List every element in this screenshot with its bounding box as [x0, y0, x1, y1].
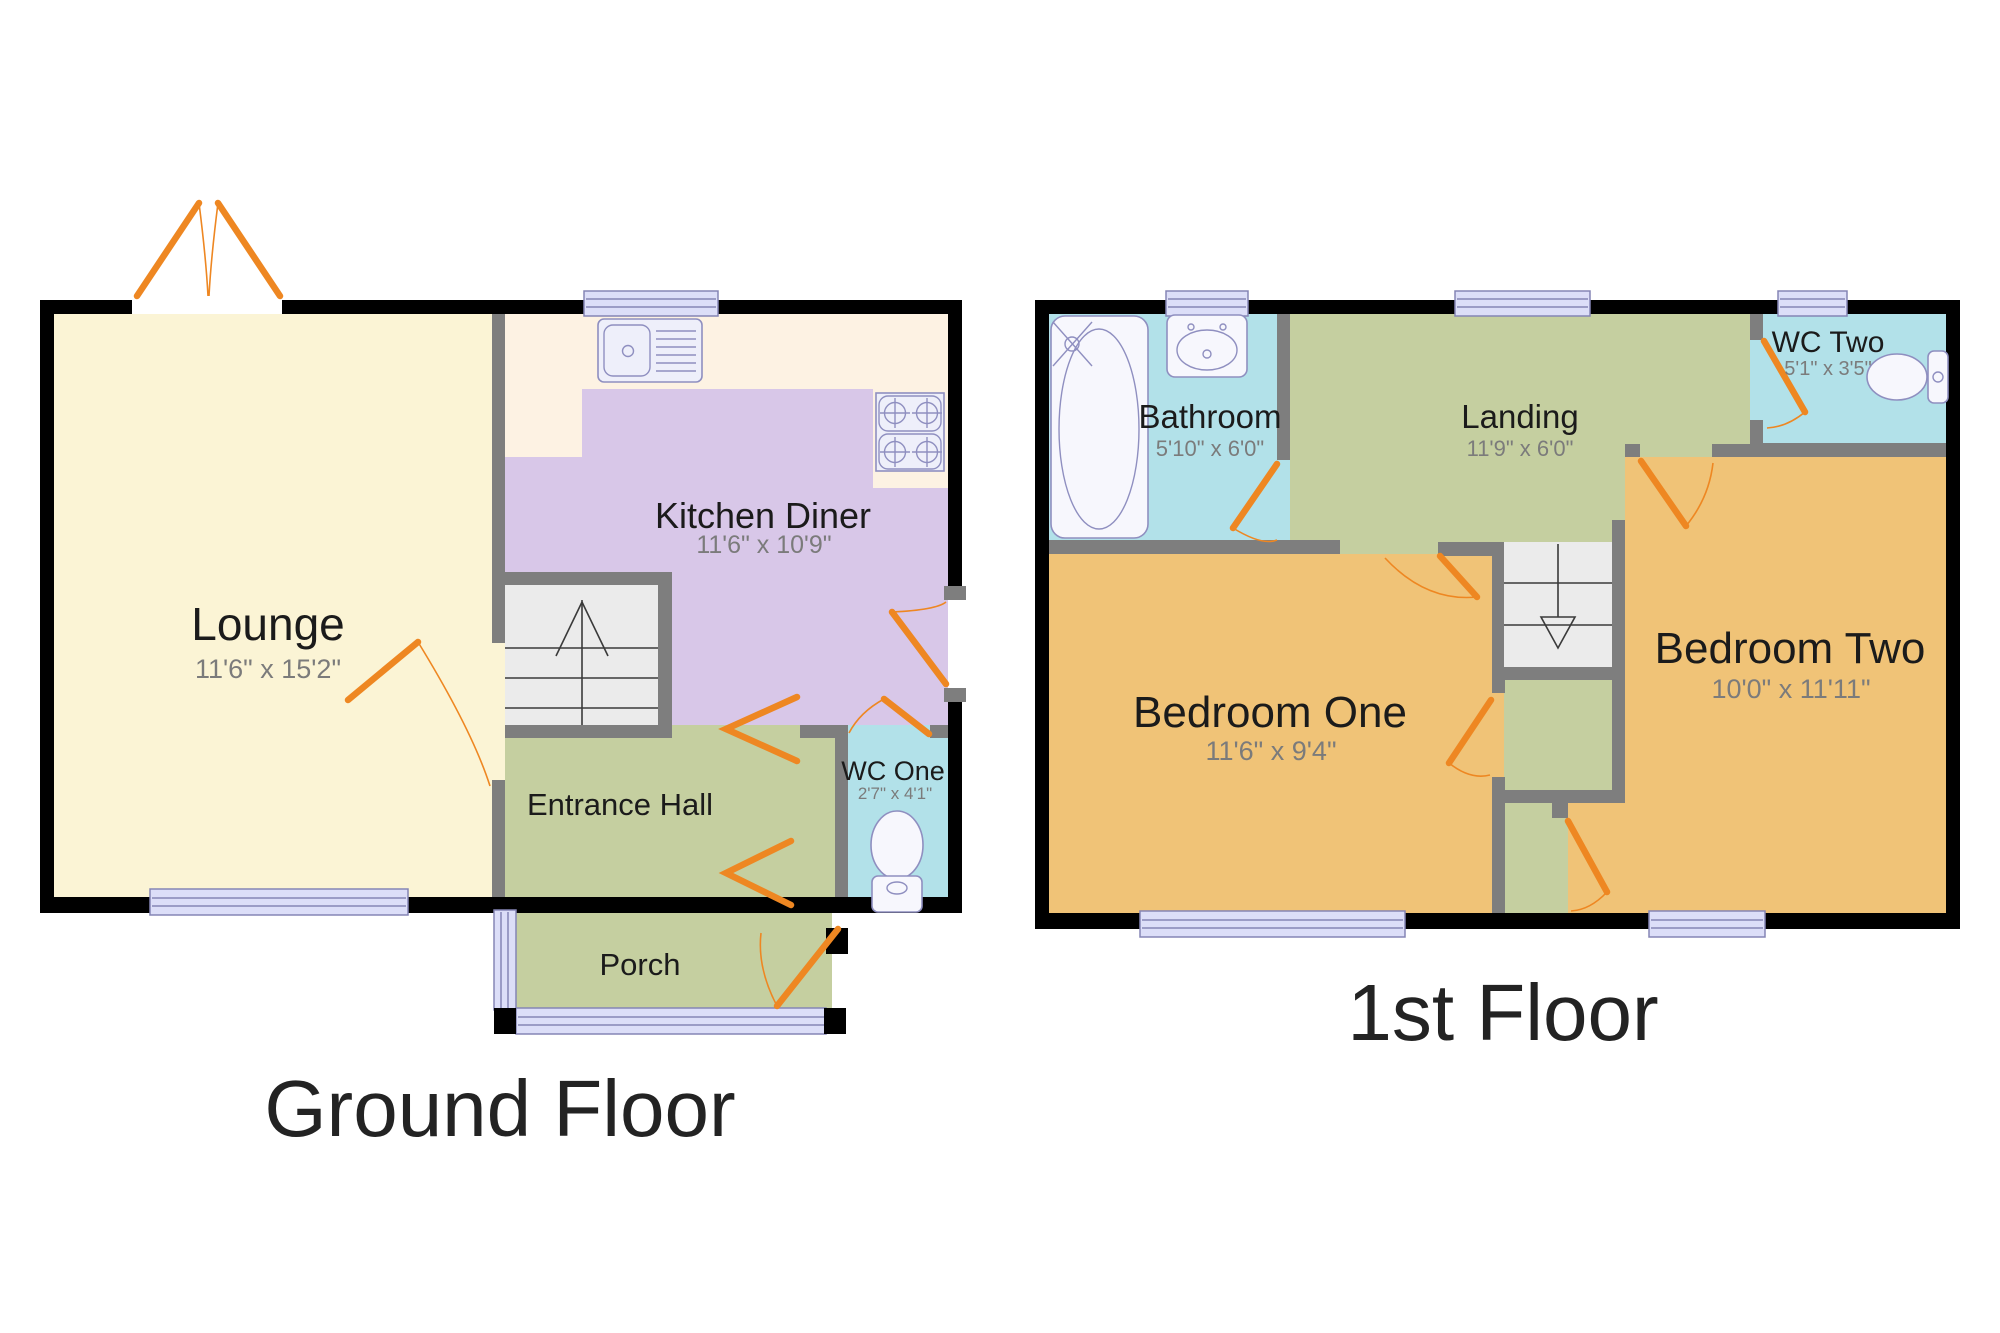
- landing-wall-piece: [1438, 542, 1504, 556]
- bedroom-two-door-opening: [1640, 444, 1712, 457]
- pocket-wall-bottom: [1492, 790, 1625, 803]
- landing-window: [1455, 291, 1590, 316]
- kitchen-door-opening: [948, 600, 962, 688]
- stairs-wall-right: [658, 572, 672, 738]
- bathroom-dims: 5'10" x 6'0": [1156, 436, 1264, 461]
- kitchen-diner-label: Kitchen Diner: [655, 495, 871, 536]
- porch-post: [494, 1008, 516, 1034]
- lounge-dims: 11'6" x 15'2": [195, 654, 341, 684]
- door-swing-arc: [209, 203, 218, 296]
- wc-two-wall-left-upper: [1750, 314, 1763, 340]
- wc-one-dims: 2'7" x 4'1": [858, 784, 932, 803]
- stairs-down-icon: [1504, 542, 1612, 667]
- wash-basin-icon: [1167, 315, 1247, 377]
- bedroom-one-dims: 11'6" x 9'4": [1205, 736, 1336, 766]
- landing-dims: 11'9" x 6'0": [1467, 436, 1574, 461]
- wc-two-wall-left-lower: [1750, 420, 1763, 443]
- bedroom-one-window: [1140, 911, 1405, 937]
- wall-left: [40, 300, 54, 913]
- bathroom-window: [1166, 291, 1248, 316]
- stair-wall-left-upper: [1492, 556, 1505, 693]
- bathroom-wall-right: [1277, 314, 1290, 460]
- porch-window-left: [494, 910, 516, 1010]
- stair-wall-bottom: [1504, 667, 1612, 680]
- wc-two-label: WC Two: [1772, 326, 1885, 359]
- first-floor-title: 1st Floor: [1347, 968, 1658, 1057]
- french-door-leaf: [218, 203, 280, 296]
- hall-wall-piece-2: [930, 725, 948, 738]
- wall-left: [1035, 300, 1049, 929]
- wc-two-window: [1778, 291, 1847, 316]
- stairs-wall-bottom: [505, 725, 672, 738]
- bedroom-two-wall-piece-2: [1712, 444, 1763, 457]
- porch-post: [824, 1008, 846, 1034]
- wc-one-label: WC One: [841, 756, 945, 786]
- french-door-opening: [132, 300, 282, 314]
- porch-window-bottom: [516, 1008, 826, 1034]
- lounge-label: Lounge: [191, 598, 345, 650]
- bathroom-wall-bottom: [1049, 540, 1340, 554]
- stairs-wall-top: [505, 572, 672, 585]
- bedroom-two-dims: 10'0" x 11'11": [1711, 674, 1870, 704]
- divider-wall-lower: [492, 780, 505, 897]
- lounge-door-opening: [492, 643, 505, 780]
- landing-door-opening: [1340, 540, 1438, 556]
- floorplan-page: Lounge 11'6" x 15'2" Kitchen Diner 11'6"…: [0, 0, 2000, 1333]
- kitchen-window: [584, 291, 718, 316]
- door-jamb-cap-top: [944, 586, 966, 600]
- stair-wall-right: [1612, 520, 1625, 798]
- floorplan-svg: Lounge 11'6" x 15'2" Kitchen Diner 11'6"…: [0, 0, 2000, 1333]
- lounge-window: [150, 889, 408, 915]
- corridor-wall-stub: [1552, 803, 1568, 818]
- bedroom-two-window: [1649, 911, 1765, 937]
- wc-two-dims: 5'1" x 3'5": [1784, 358, 1871, 380]
- french-door-leaf: [137, 203, 199, 296]
- bathtub-icon: [1051, 316, 1148, 538]
- stairs-up-icon: [505, 585, 658, 725]
- bedroom-one-label: Bedroom One: [1133, 688, 1407, 737]
- landing-label: Landing: [1461, 398, 1578, 435]
- divider-wall-upper: [492, 314, 505, 643]
- cooker-hob-icon: [876, 393, 944, 471]
- wc-two-wall-bottom: [1750, 443, 1946, 457]
- porch-label: Porch: [600, 947, 681, 982]
- kitchen-diner-dims: 11'6" x 10'9": [696, 531, 831, 559]
- door-swing-arc: [199, 203, 208, 296]
- ground-floor-title: Ground Floor: [264, 1064, 735, 1153]
- bathroom-door-opening: [1277, 460, 1290, 540]
- hall-wall-piece: [800, 725, 848, 738]
- landing-corridor: [1505, 803, 1568, 913]
- toilet-icon-wc-one: [871, 811, 923, 912]
- ground-floor-plan: Lounge 11'6" x 15'2" Kitchen Diner 11'6"…: [40, 203, 966, 1153]
- bathroom-label: Bathroom: [1138, 398, 1281, 435]
- wc-two-door-opening: [1750, 340, 1763, 420]
- kitchen-sink-icon: [598, 319, 702, 382]
- entrance-hall-label: Entrance Hall: [527, 787, 713, 822]
- bedroom-two-wall-piece: [1625, 444, 1640, 457]
- bedroom-two-label: Bedroom Two: [1655, 624, 1926, 673]
- door-jamb-cap-bottom: [944, 688, 966, 702]
- first-floor-plan: Bathroom 5'10" x 6'0" Landing 11'9" x 6'…: [1035, 291, 1960, 1057]
- landing-pocket: [1504, 680, 1612, 790]
